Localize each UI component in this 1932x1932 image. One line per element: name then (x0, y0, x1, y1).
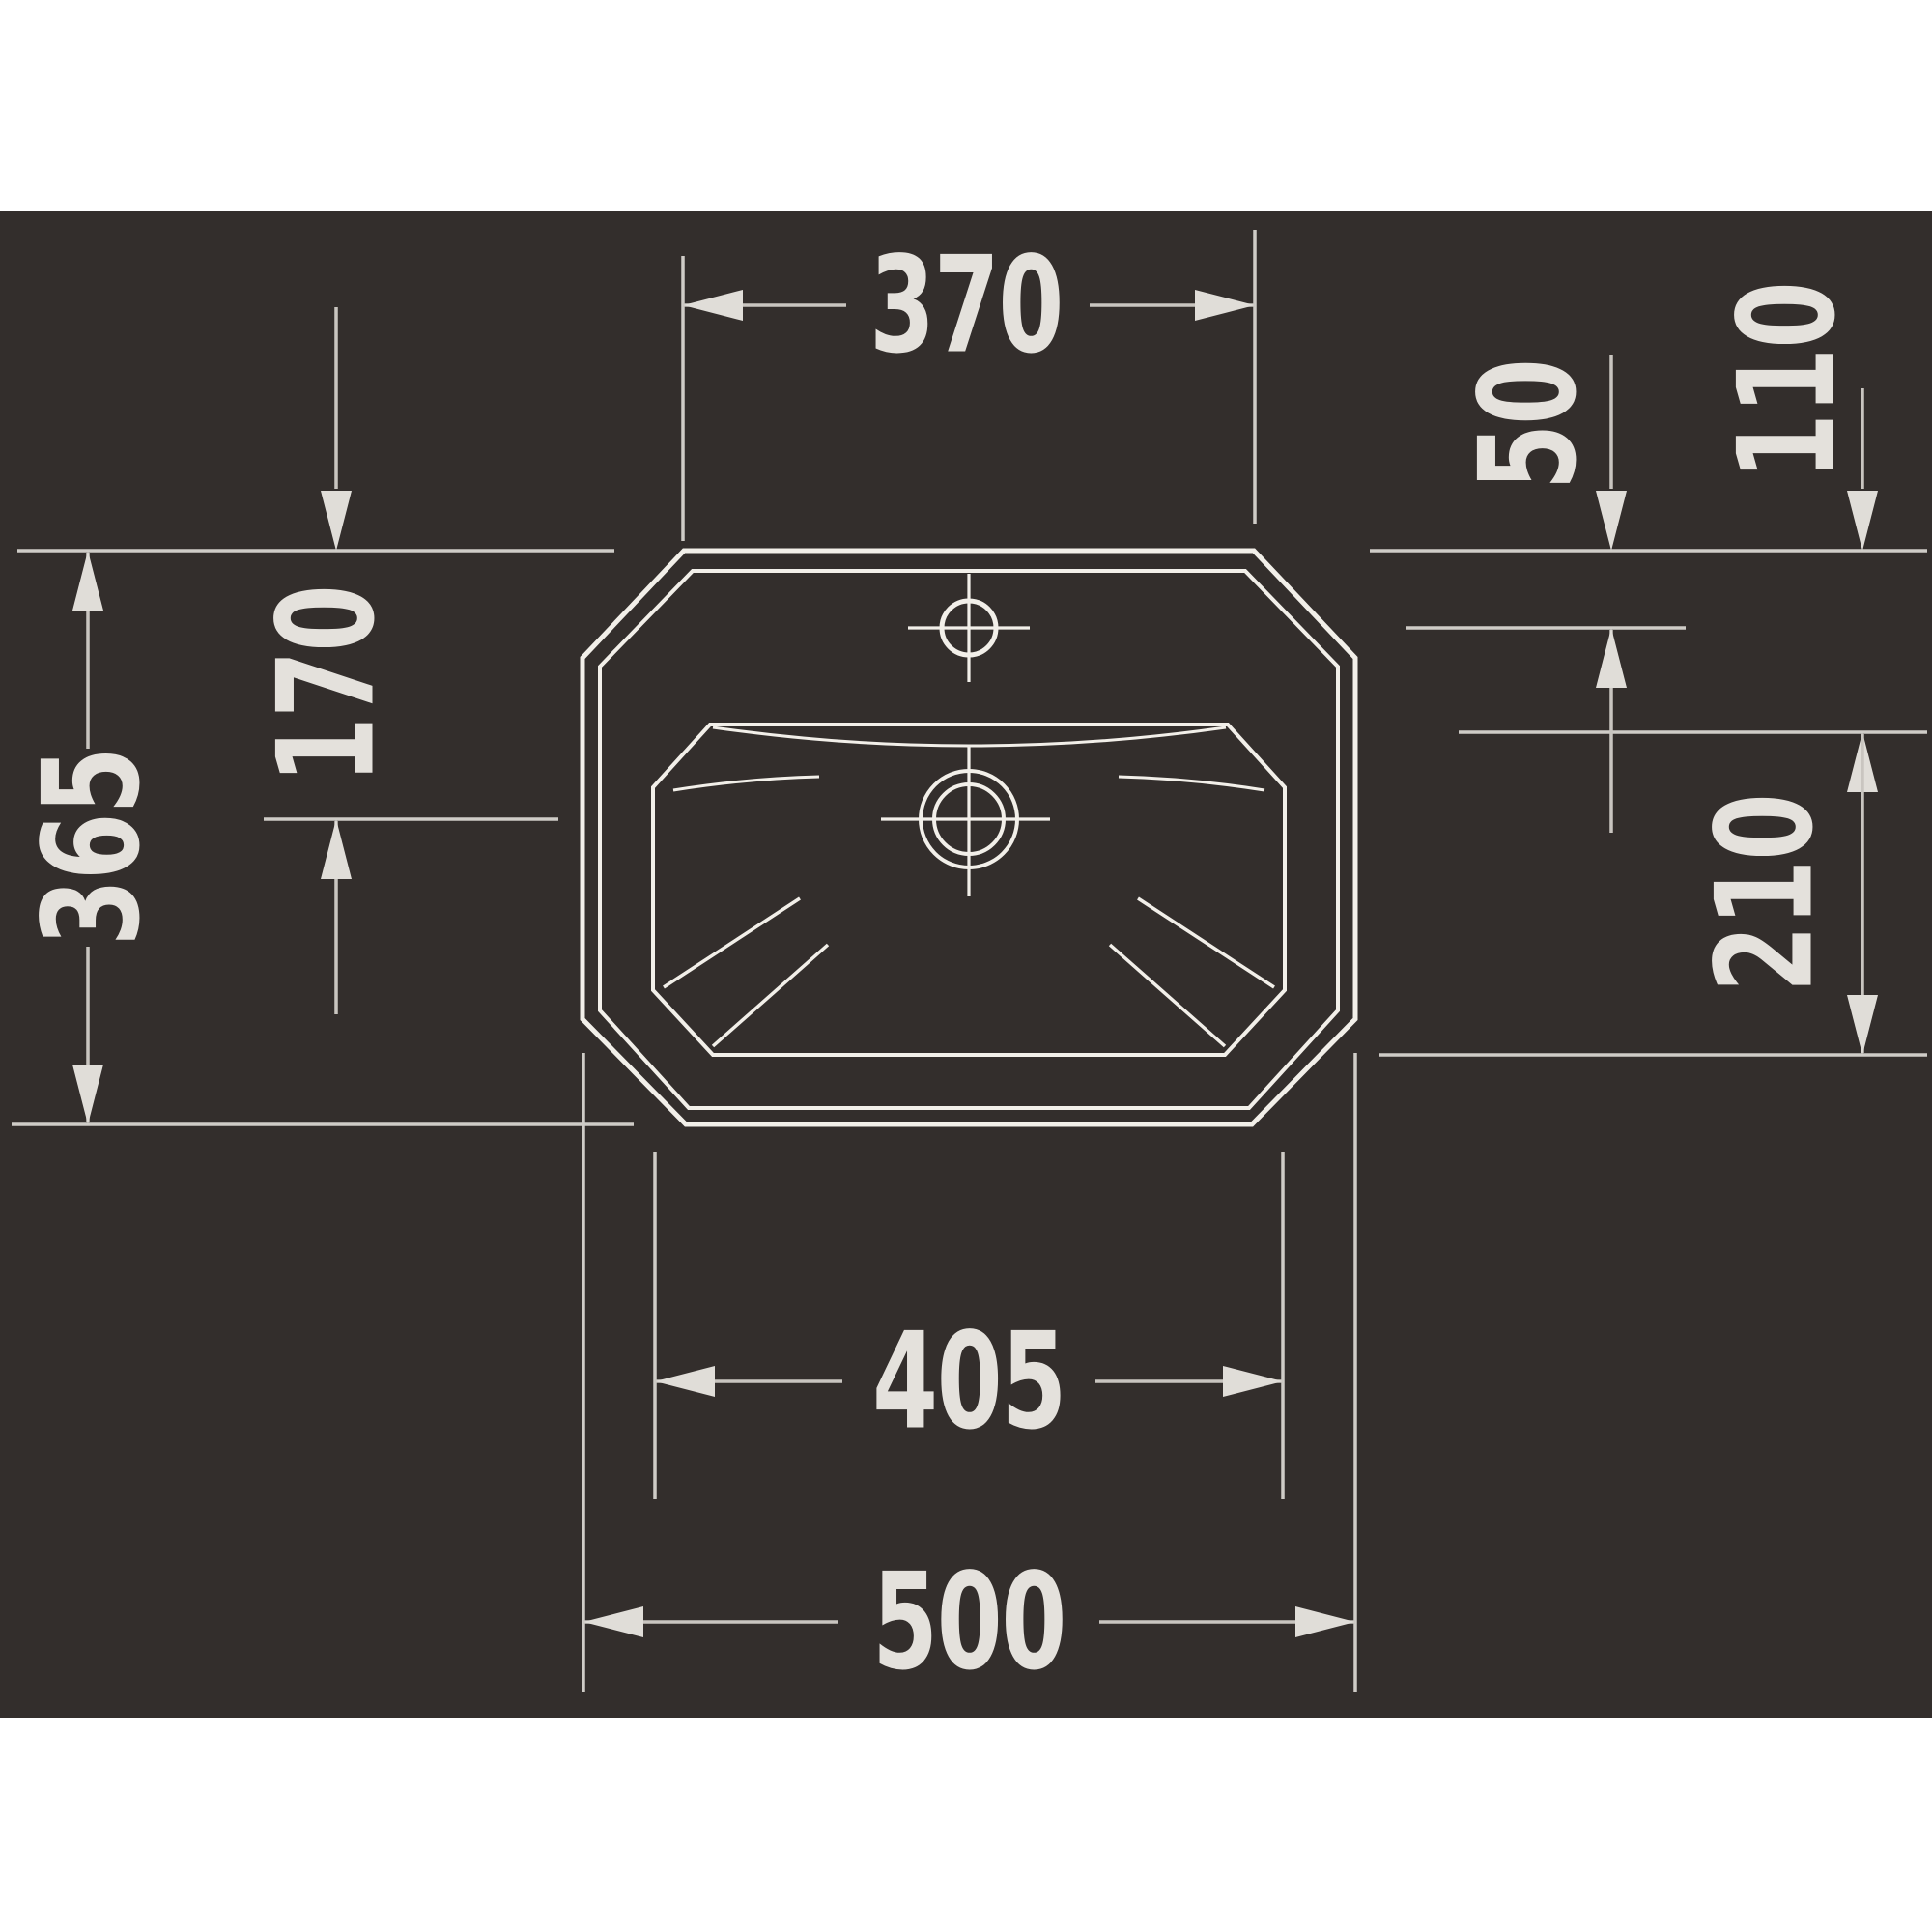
dim-label-210: 210 (1688, 795, 1843, 993)
drawing-background (0, 211, 1932, 1718)
dim-label-50: 50 (1451, 360, 1606, 491)
technical-drawing-page: 370 365 170 50 110 210 405 (0, 0, 1932, 1932)
washbasin-dimension-drawing: 370 365 170 50 110 210 405 (0, 0, 1932, 1932)
dim-label-500: 500 (872, 1545, 1065, 1700)
dim-label-405: 405 (872, 1304, 1065, 1460)
dim-label-370: 370 (869, 228, 1063, 384)
dim-label-110: 110 (1710, 283, 1865, 481)
dim-label-365: 365 (14, 749, 170, 947)
dim-label-170: 170 (249, 586, 405, 784)
